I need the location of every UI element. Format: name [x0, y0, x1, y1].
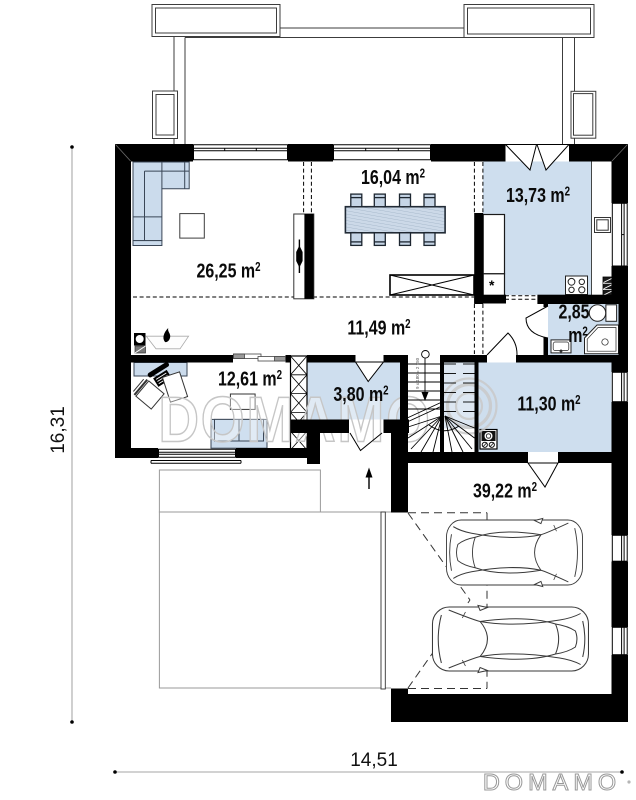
- svg-text:DOMAMO: DOMAMO: [483, 769, 621, 795]
- svg-text:*: *: [489, 277, 495, 293]
- svg-text:9 x 180 = 2 750: 9 x 180 = 2 750: [415, 357, 420, 389]
- svg-text:39,22 m2: 39,22 m2: [473, 479, 537, 502]
- svg-text:DOMAMO: DOMAMO: [158, 383, 431, 455]
- svg-text:11,30 m2: 11,30 m2: [517, 392, 580, 415]
- svg-text:3,80 m2: 3,80 m2: [333, 382, 388, 405]
- svg-text:11,49 m2: 11,49 m2: [347, 316, 410, 339]
- svg-text:26,25 m2: 26,25 m2: [196, 259, 260, 282]
- svg-text:14,51: 14,51: [350, 750, 398, 771]
- svg-text:13,73 m2: 13,73 m2: [506, 183, 570, 206]
- svg-text:12,61 m2: 12,61 m2: [218, 367, 282, 390]
- svg-text:2,85: 2,85: [558, 300, 589, 323]
- svg-text:16,31: 16,31: [48, 406, 69, 454]
- svg-text:16,04 m2: 16,04 m2: [361, 165, 425, 188]
